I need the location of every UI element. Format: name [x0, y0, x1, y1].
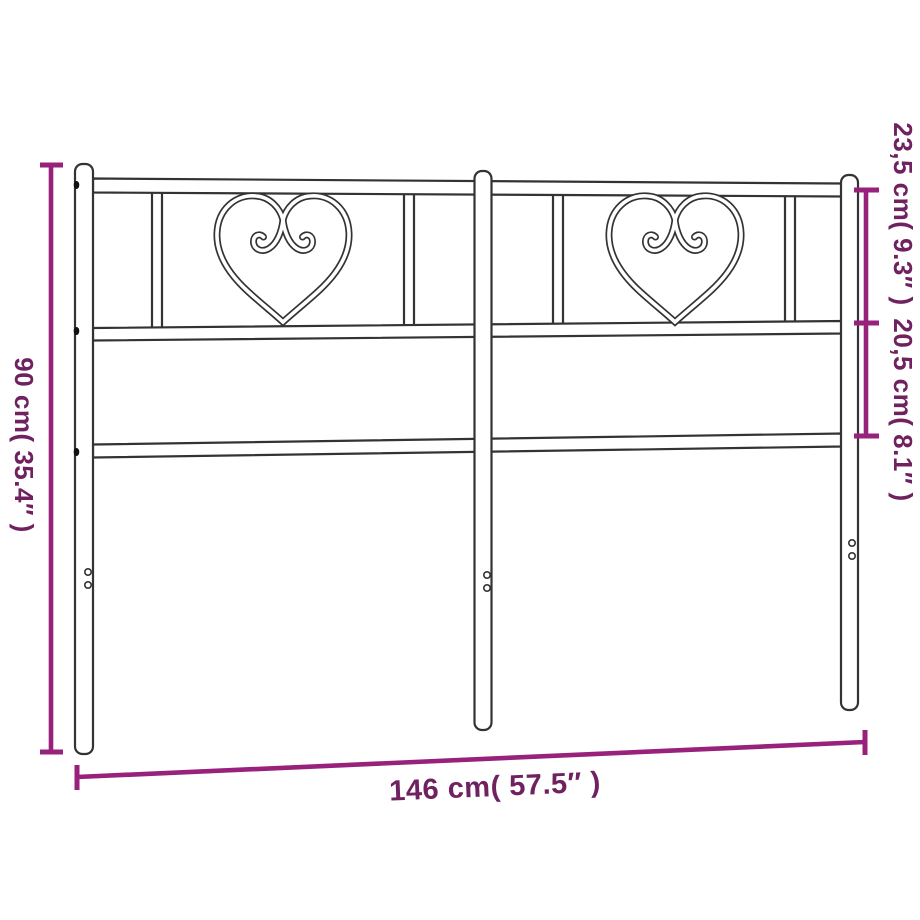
heart-ornament-left-icon	[217, 196, 349, 322]
height-dimension-line	[40, 165, 63, 752]
dimension-labels: 90 cm( 35.4″ ) 23,5 cm( 9.3″ ) 20,5 cm( …	[9, 122, 918, 807]
screw-dot	[74, 448, 80, 456]
spindle-left-panel-1	[152, 186, 162, 336]
left-post	[75, 164, 93, 754]
dimension-diagram: 90 cm( 35.4″ ) 23,5 cm( 9.3″ ) 20,5 cm( …	[0, 0, 920, 920]
width-dimension-label: 146 cm( 57.5″ )	[389, 766, 602, 807]
right-post	[841, 175, 858, 710]
headboard-diagram-canvas: 90 cm( 35.4″ ) 23,5 cm( 9.3″ ) 20,5 cm( …	[0, 0, 920, 920]
top-rail	[93, 179, 842, 197]
top-section-dimension-label: 23,5 cm( 9.3″ )	[888, 122, 918, 305]
middle-rail	[93, 321, 842, 341]
screw-dot	[74, 181, 80, 189]
dimension-lines	[40, 165, 879, 790]
lower-rail	[93, 434, 842, 458]
mounting-hole	[484, 572, 490, 578]
middle-post	[475, 171, 492, 730]
screw-dot	[74, 327, 80, 335]
heart-ornament-right-icon	[609, 196, 741, 322]
spindle-right-panel-2	[785, 184, 795, 327]
mounting-hole	[484, 585, 490, 591]
mounting-hole	[85, 569, 91, 575]
spindle-right-panel-1	[553, 185, 563, 330]
mounting-hole	[85, 582, 91, 588]
height-dimension-label: 90 cm( 35.4″ )	[9, 357, 39, 533]
middle-section-dimension-label: 20,5 cm( 8.1″ )	[888, 318, 918, 501]
headboard-frame	[74, 164, 858, 754]
spindle-left-panel-2	[404, 186, 414, 334]
mounting-hole	[849, 540, 855, 546]
mounting-hole	[849, 553, 855, 559]
